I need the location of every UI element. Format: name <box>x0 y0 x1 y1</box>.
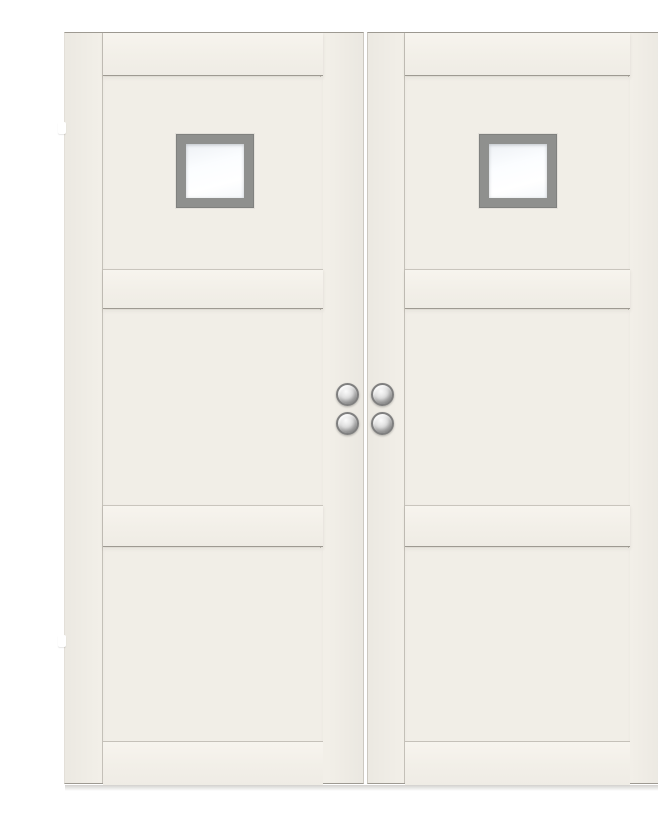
left-door-meeting-stile <box>320 33 363 783</box>
left-door-hinge-stile <box>65 33 103 783</box>
right-door-bottom-rail <box>405 741 630 785</box>
left-door-top-hinge <box>58 122 66 134</box>
left-door-bottom-panel <box>103 548 323 741</box>
right-door-lower-mid-rail <box>405 505 630 547</box>
left-door-bottom-hinge <box>58 635 66 647</box>
right-door-window-frame <box>479 134 557 208</box>
left-door-middle-panel <box>103 310 323 505</box>
right-door-top-rail <box>405 33 630 76</box>
right-door-bottom-panel <box>405 548 630 741</box>
door-knob-bottom-left <box>336 412 359 435</box>
floor-shadow <box>65 785 658 791</box>
left-door-upper-mid-rail <box>103 269 323 309</box>
left-door-window-glass <box>186 144 244 198</box>
left-door-bottom-rail <box>103 741 323 785</box>
right-door-window-glass <box>489 144 547 198</box>
product-photo-double-doors <box>40 16 658 806</box>
door-knob-bottom-right <box>371 412 394 435</box>
door-knob-top-left <box>336 383 359 406</box>
left-door-lower-mid-rail <box>103 505 323 547</box>
right-door-upper-mid-rail <box>405 269 630 309</box>
left-door-top-rail <box>103 33 323 76</box>
right-door-middle-panel <box>405 310 630 505</box>
right-door-meeting-stile <box>368 33 405 783</box>
door-leaf-left <box>64 32 364 784</box>
door-leaf-right <box>367 32 658 784</box>
door-knob-top-right <box>371 383 394 406</box>
right-door-hinge-stile <box>628 33 658 783</box>
left-door-window-frame <box>176 134 254 208</box>
